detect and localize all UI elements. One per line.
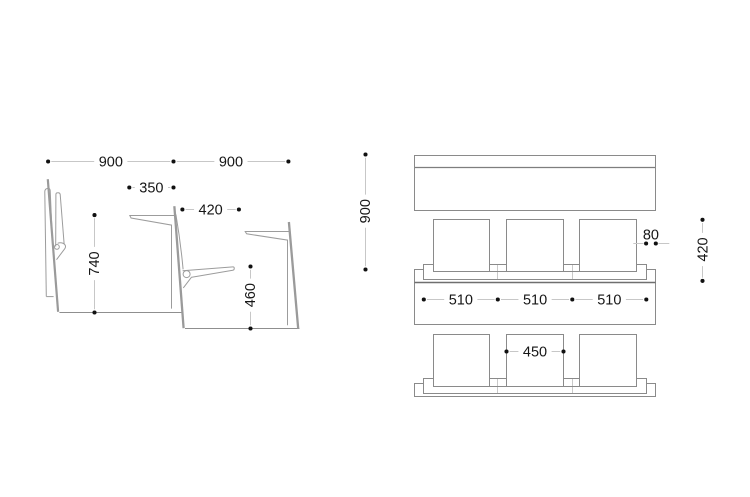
svg-text:510: 510	[449, 293, 473, 309]
svg-text:460: 460	[243, 283, 259, 307]
svg-text:740: 740	[87, 251, 103, 275]
svg-text:900: 900	[99, 155, 123, 171]
svg-text:350: 350	[139, 181, 163, 197]
svg-text:80: 80	[643, 228, 659, 244]
svg-text:900: 900	[219, 155, 243, 171]
svg-text:420: 420	[199, 203, 223, 219]
svg-text:900: 900	[358, 199, 374, 223]
svg-text:510: 510	[597, 293, 621, 309]
svg-text:450: 450	[523, 345, 547, 361]
svg-text:510: 510	[523, 293, 547, 309]
svg-text:420: 420	[696, 237, 712, 261]
